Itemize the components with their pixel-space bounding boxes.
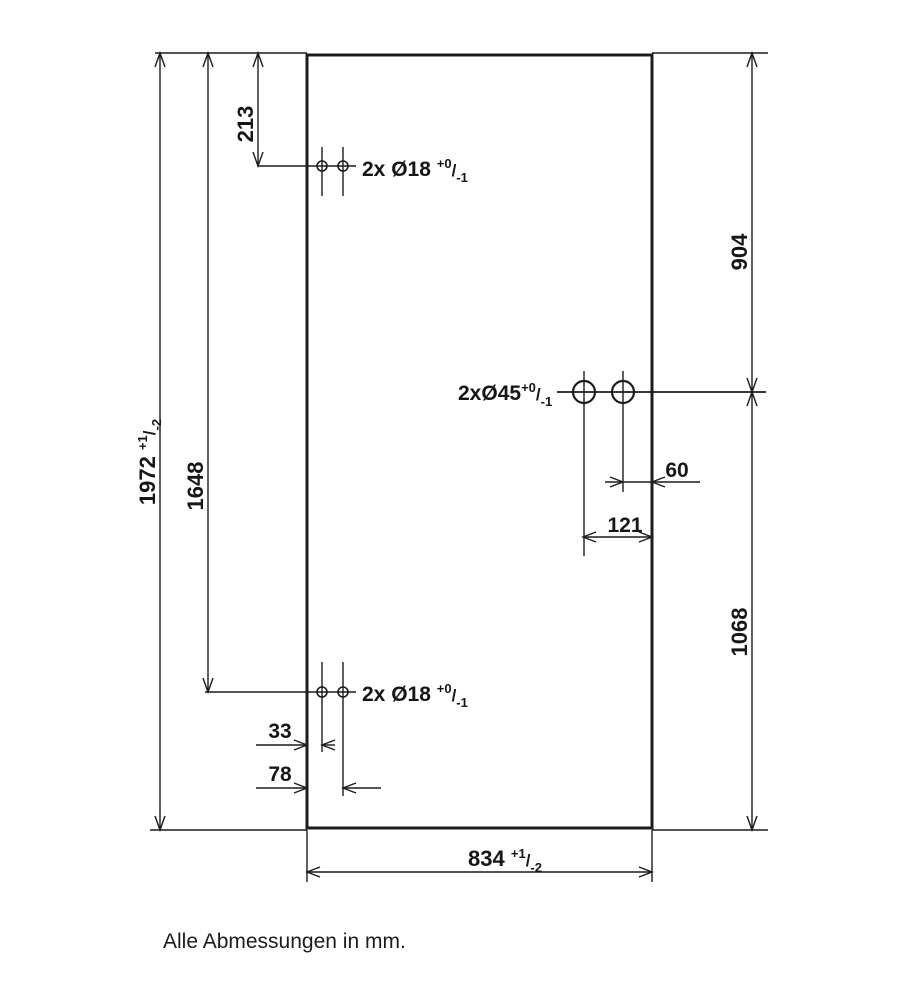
dim-top-holes-offset-label: 213 (233, 106, 258, 143)
dim-bottom-holes-height-label: 1648 (183, 462, 208, 511)
dim-right-upper (747, 53, 757, 392)
footer-note: Alle Abmessungen in mm. (163, 930, 406, 953)
top-holes-label: 2x Ø18 +0/-1 (362, 156, 468, 185)
dim-right-upper-label: 904 (727, 233, 752, 270)
mid-holes-group (557, 371, 766, 556)
dim-right-lower-label: 1068 (727, 608, 752, 657)
drawing-canvas: 2x Ø18 +0/-1 2xØ45+0/-1 2x Ø18 +0/-1 197… (0, 0, 900, 1000)
bottom-holes-label: 2x Ø18 +0/-1 (362, 681, 468, 710)
dim-bottom-holes-height (203, 53, 213, 692)
dim-bottom-hole-large-label: 78 (268, 763, 292, 786)
dim-total-width-label: 834 +1/-2 (468, 846, 542, 875)
dim-total-height (155, 53, 165, 830)
panel-outline (307, 55, 652, 828)
dim-mid-hole-large-label: 121 (607, 514, 642, 537)
dim-mid-hole-small-label: 60 (665, 459, 688, 482)
technical-drawing: 2x Ø18 +0/-1 2xØ45+0/-1 2x Ø18 +0/-1 197… (0, 0, 900, 1000)
dim-bottom-hole-small-label: 33 (268, 720, 291, 743)
mid-holes-label: 2xØ45+0/-1 (458, 380, 552, 409)
